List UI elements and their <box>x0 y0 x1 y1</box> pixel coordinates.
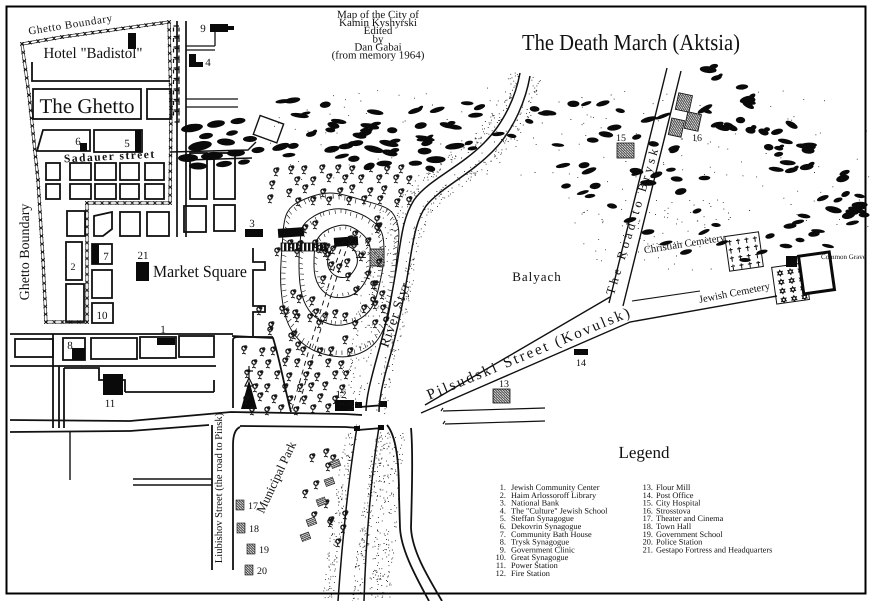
svg-text:4: 4 <box>205 57 211 69</box>
svg-text:10: 10 <box>97 310 109 322</box>
svg-text:15: 15 <box>616 133 626 144</box>
svg-text:19: 19 <box>259 545 269 556</box>
svg-text:12.: 12. <box>496 569 506 578</box>
svg-text:The Ghetto: The Ghetto <box>39 94 134 118</box>
svg-text:18: 18 <box>249 524 259 535</box>
svg-text:2: 2 <box>71 262 76 273</box>
svg-text:5: 5 <box>124 138 130 150</box>
svg-text:21.: 21. <box>643 545 653 554</box>
svg-text:Common Grave: Common Grave <box>821 253 866 261</box>
svg-text:9: 9 <box>200 23 206 35</box>
svg-text:21: 21 <box>138 250 149 262</box>
svg-text:Fire Station: Fire Station <box>511 569 551 578</box>
svg-text:16: 16 <box>692 133 702 144</box>
svg-text:The Death March (Aktsia): The Death March (Aktsia) <box>522 30 740 55</box>
svg-text:13: 13 <box>499 379 509 390</box>
svg-text:14: 14 <box>576 358 586 369</box>
svg-text:20: 20 <box>257 566 267 577</box>
svg-text:Gestapo Fortress and Headquart: Gestapo Fortress and Headquarters <box>656 545 772 554</box>
svg-text:Liubishov Street (the road to: Liubishov Street (the road to Pinsk) <box>214 412 225 563</box>
svg-text:Balyach: Balyach <box>512 269 562 284</box>
svg-text:11: 11 <box>105 398 116 410</box>
svg-text:3: 3 <box>249 218 255 230</box>
svg-text:Ghetto Boundary: Ghetto Boundary <box>18 204 33 301</box>
svg-text:Legend: Legend <box>619 443 670 462</box>
svg-text:7: 7 <box>103 251 109 263</box>
svg-text:Hotel "Badistol": Hotel "Badistol" <box>44 45 143 62</box>
svg-text:Market Square: Market Square <box>153 262 247 281</box>
svg-text:1: 1 <box>160 324 166 336</box>
svg-text:(from memory 1964): (from memory 1964) <box>332 50 425 62</box>
